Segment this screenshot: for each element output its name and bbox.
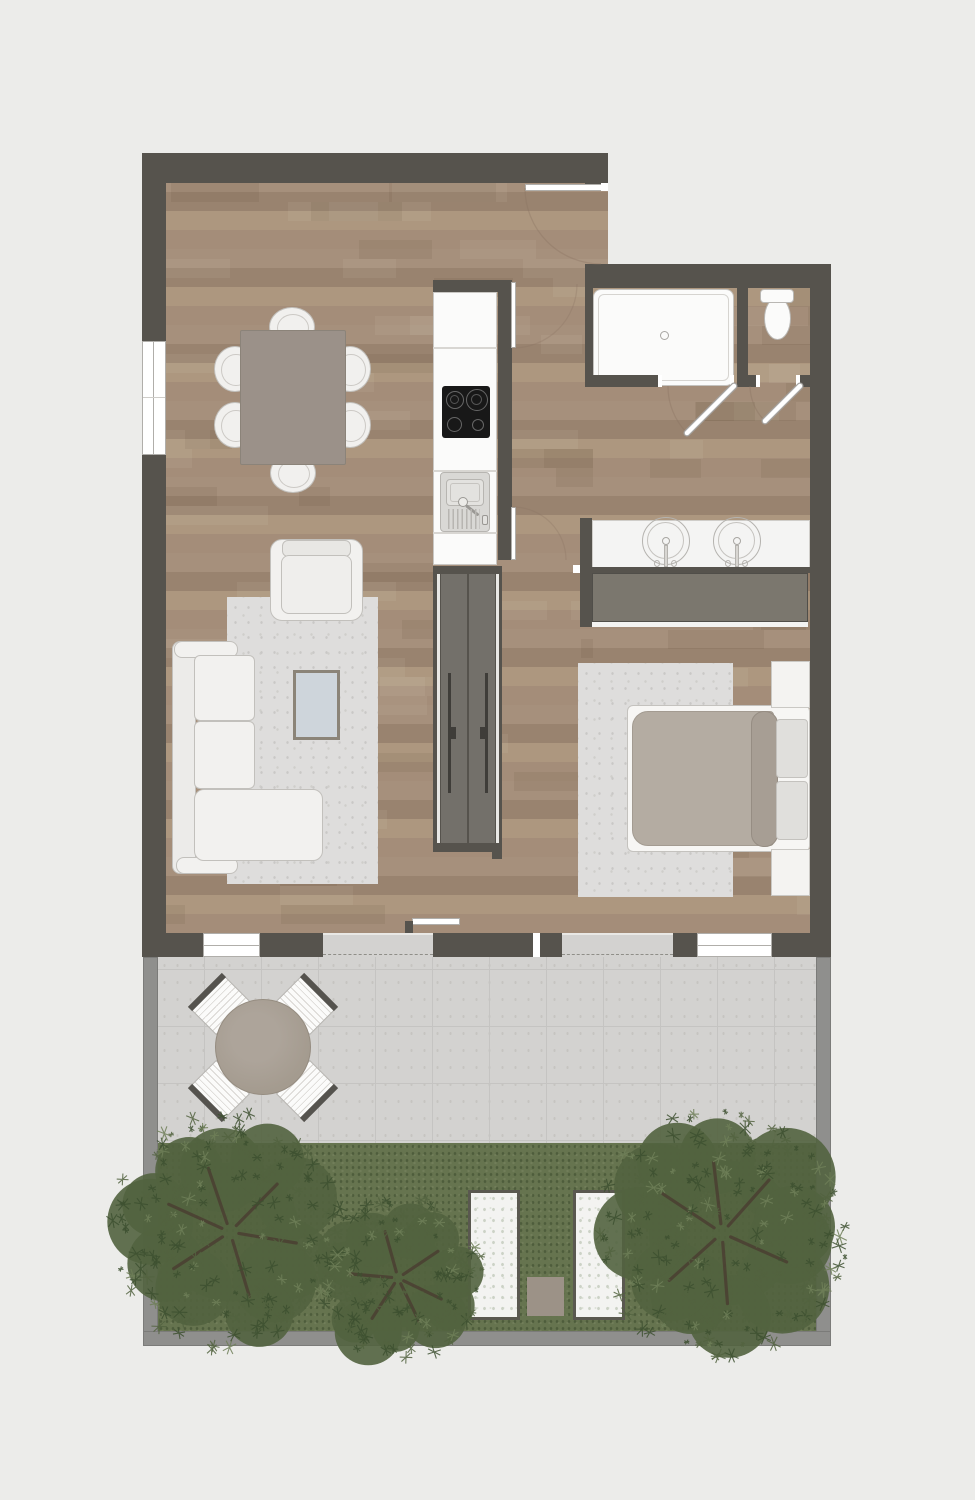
- wall-wc-bottom-left: [748, 375, 756, 387]
- wall-kitchen-cap: [433, 280, 512, 292]
- faucet-stem: [664, 545, 668, 567]
- terrace-glass-door-bedroom: [562, 933, 673, 957]
- shower-drain: [660, 331, 669, 340]
- wall-shower-bottom: [585, 375, 658, 387]
- window-terrace-right: [697, 933, 772, 957]
- wardrobe-front-track: [592, 622, 808, 627]
- wall-right: [810, 288, 831, 957]
- door-frame-notch: [756, 375, 760, 387]
- sofa-cushion-2: [194, 721, 255, 789]
- sofa-cushion-1: [194, 655, 255, 721]
- plank-shade: [166, 506, 268, 525]
- door-frame-notch: [658, 375, 662, 387]
- wall-bottom-seg: [673, 933, 697, 957]
- sofa-back: [172, 641, 196, 874]
- faucet-knob: [742, 560, 748, 567]
- wall-bottom-seg: [540, 933, 562, 957]
- sofa-chaise: [194, 789, 323, 861]
- faucet-knob: [671, 560, 677, 567]
- plank-shade: [166, 430, 210, 449]
- window-terrace-left: [203, 933, 260, 957]
- wall-bottom-seg: [772, 933, 831, 957]
- bed-roll: [751, 711, 778, 847]
- shower-tray: [593, 289, 734, 386]
- plank-shade: [541, 335, 582, 354]
- drainboard-ribs: [448, 509, 480, 529]
- wall-left-upper: [142, 183, 166, 341]
- glass-line: [323, 933, 433, 935]
- plank-shade: [511, 430, 578, 449]
- burner: [446, 391, 464, 409]
- terrace-glass-door-living: [323, 933, 433, 957]
- plank-shade: [392, 183, 507, 202]
- pillow: [776, 719, 808, 778]
- threshold-dash: [323, 954, 433, 955]
- hallway-door-leaf-upper: [511, 282, 516, 348]
- cooktop: [442, 386, 490, 438]
- cabinet-divider: [433, 347, 497, 349]
- wall-bath-top: [585, 264, 831, 288]
- sliding-door-slit: [496, 574, 499, 843]
- faucet-stem: [735, 545, 739, 567]
- sliding-panel-left: [441, 574, 467, 843]
- plank-shade: [343, 259, 396, 278]
- wall-left-lower: [142, 455, 166, 933]
- faucet-dot: [662, 537, 670, 545]
- burner: [447, 417, 462, 432]
- armchair-seat: [281, 555, 352, 614]
- wall-top: [142, 153, 608, 183]
- paver-square: [527, 1277, 564, 1316]
- plank-shade: [171, 183, 259, 202]
- burner: [466, 389, 488, 411]
- plank-shade: [670, 440, 703, 459]
- pillow: [776, 781, 808, 840]
- sliding-glass-leaf-stub: [405, 921, 413, 933]
- wall-bottom-seg: [142, 933, 203, 957]
- plank-shade: [311, 202, 402, 221]
- faucet-dot: [733, 537, 741, 545]
- faucet-knob: [654, 560, 660, 567]
- plank-shade: [650, 459, 701, 478]
- plank-shade: [695, 402, 755, 421]
- window-left: [142, 341, 166, 455]
- vanity-counter: [592, 520, 810, 568]
- glass-line: [562, 933, 673, 935]
- plank-shade: [359, 240, 432, 259]
- plank-shade: [166, 449, 192, 468]
- plank-shade: [761, 459, 810, 478]
- panel-handle-grip: [480, 727, 485, 739]
- plank-shade: [281, 905, 385, 924]
- wall-vanity-bottom: [583, 567, 810, 573]
- panel-handle-grip: [451, 727, 456, 739]
- plank-shade: [668, 630, 764, 649]
- entry-door-leaf: [525, 184, 602, 191]
- patio-table: [215, 999, 311, 1095]
- wall-kitchen: [498, 292, 512, 560]
- door-frame-notch: [533, 933, 540, 957]
- sliding-panel-right: [469, 574, 495, 843]
- sliding-glass-leaf: [412, 918, 460, 925]
- plank-shade: [460, 240, 536, 259]
- plank-shade: [166, 487, 217, 506]
- wall-bottom-seg: [433, 933, 533, 957]
- plank-shade: [166, 905, 185, 924]
- wall-bottom-seg: [260, 933, 323, 957]
- panel-handle: [485, 673, 488, 793]
- hallway-door-leaf-lower: [511, 507, 516, 560]
- threshold-dash: [562, 954, 673, 955]
- gravel-bed-right: [573, 1190, 625, 1320]
- sliding-door-foot: [492, 847, 502, 859]
- toilet-bowl: [764, 297, 791, 340]
- coffee-table: [293, 670, 340, 740]
- wall-shower-wc-divider: [737, 288, 748, 387]
- wardrobe: [592, 573, 808, 622]
- nightstand: [771, 661, 810, 708]
- wall-wc-bottom-right: [800, 375, 810, 387]
- cabinet-divider: [433, 532, 497, 534]
- boundary-wall-left: [143, 957, 158, 1346]
- floor-plan-canvas: [0, 0, 975, 1500]
- boundary-wall-right: [816, 957, 831, 1346]
- toilet-tank: [760, 289, 794, 303]
- plank-shade: [380, 677, 432, 696]
- soap-pump: [482, 515, 488, 525]
- plank-shade: [166, 259, 230, 278]
- plank-shade: [280, 886, 353, 905]
- kitchen-sink-module: [440, 472, 490, 532]
- door-frame-notch: [601, 183, 608, 191]
- dining-table: [240, 330, 346, 465]
- plank-shade: [797, 896, 810, 915]
- faucet-knob: [725, 560, 731, 567]
- sliding-door-slit: [437, 574, 440, 843]
- gravel-bed-left: [468, 1190, 520, 1320]
- wall-shower-left: [585, 288, 593, 387]
- boundary-wall-bottom: [143, 1331, 831, 1346]
- door-frame-notch: [730, 375, 734, 387]
- door-frame-notch: [573, 565, 580, 573]
- burner: [472, 419, 484, 431]
- nightstand: [771, 849, 810, 896]
